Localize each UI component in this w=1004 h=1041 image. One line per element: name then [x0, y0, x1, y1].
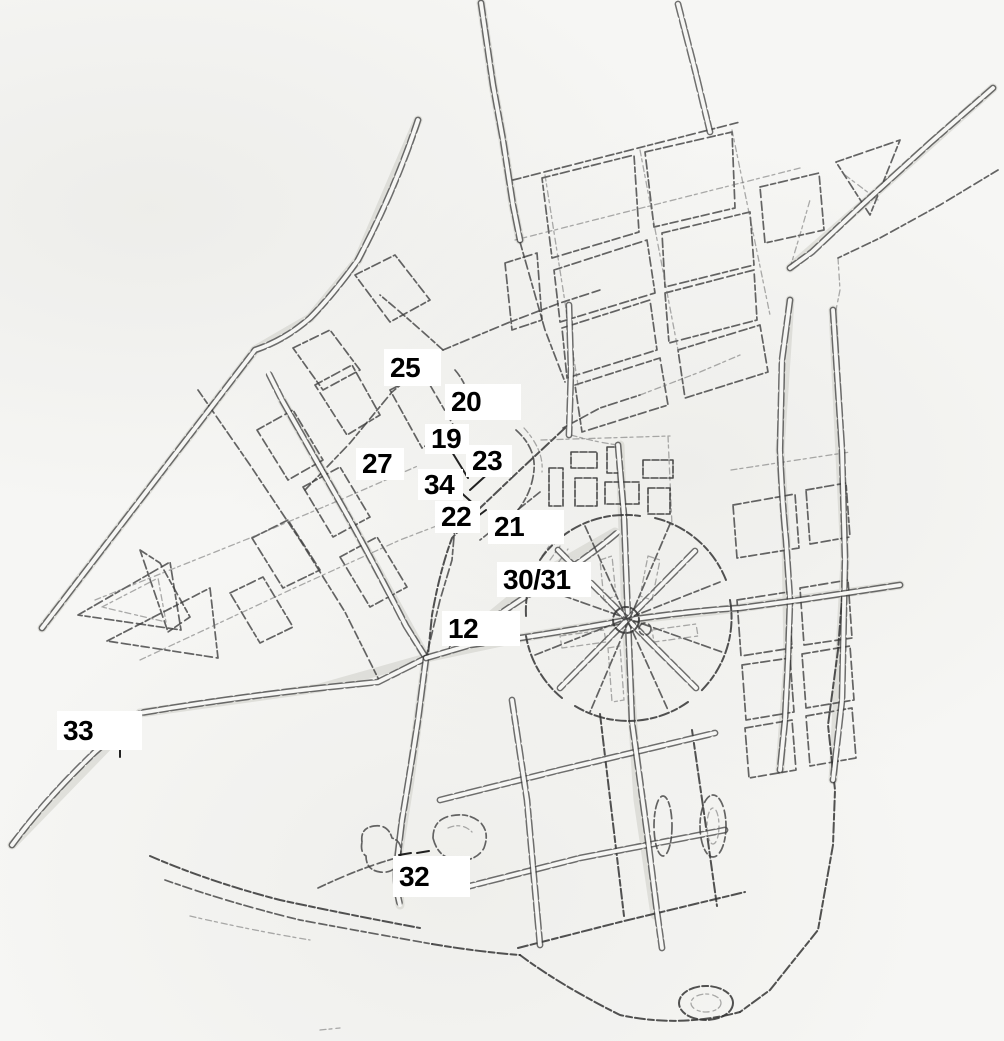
- sketch-map: 25 20 19 27 23 34 22 21 30/31 12 33 32: [0, 0, 1004, 1041]
- map-marker-22: 22: [435, 501, 480, 533]
- map-marker-23: 23: [466, 445, 512, 477]
- map-marker-20: 20: [445, 384, 521, 420]
- map-marker-12: 12: [442, 611, 520, 646]
- map-marker-33: 33: [57, 711, 142, 750]
- map-marker-34: 34: [418, 469, 463, 500]
- map-marker-25: 25: [384, 349, 441, 386]
- map-marker-21: 21: [488, 510, 564, 544]
- northeast-city-grid: [505, 122, 998, 432]
- map-marker-27: 27: [356, 448, 404, 480]
- map-marker-32: 32: [393, 856, 470, 897]
- map-marker-19: 19: [425, 424, 469, 454]
- map-marker-30-31: 30/31: [497, 562, 591, 597]
